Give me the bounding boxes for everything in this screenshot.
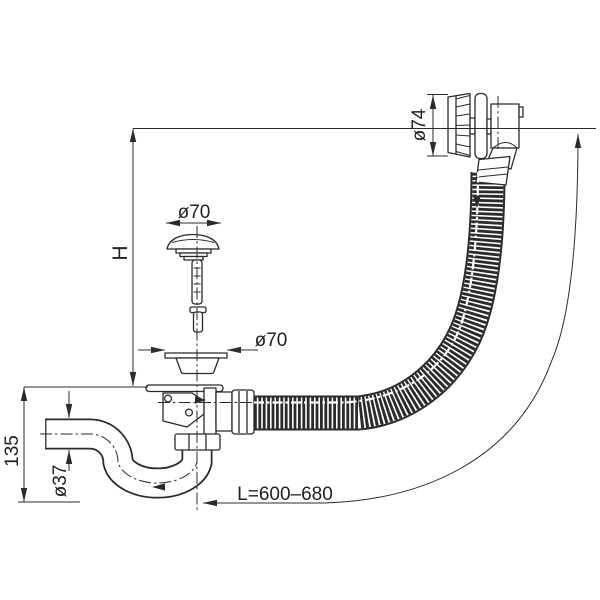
- dim-label-135: 135: [2, 435, 23, 467]
- arrowhead-right: [151, 347, 165, 353]
- dim-label-dia37: ø37: [50, 465, 71, 498]
- compression-nut: [232, 390, 254, 434]
- outlet-taper: [216, 392, 232, 431]
- arrowhead-left: [203, 500, 217, 506]
- hose-sleeve: [476, 157, 510, 186]
- knob-hub: [470, 118, 475, 134]
- arrowhead-up: [21, 387, 27, 401]
- overflow-body: [491, 104, 519, 148]
- overflow-body-tab: [519, 107, 523, 117]
- dim-hose-length: [203, 134, 581, 506]
- overflow-fitting: [448, 94, 523, 186]
- siphon-technical-drawing: H 135 ø37 ø70 ø70 ø74: [0, 0, 600, 600]
- overflow-flange-disc: [475, 94, 487, 159]
- dim-overflow-dia-74: [427, 95, 448, 157]
- linkage-pin: [190, 307, 206, 332]
- arrowhead-down: [130, 372, 136, 386]
- drain-plug: [167, 235, 219, 305]
- dim-label-length: L=600–680: [237, 484, 333, 505]
- arrowhead-down: [430, 142, 436, 156]
- strainer-basket: [165, 353, 227, 374]
- dim-label-H: H: [109, 245, 132, 260]
- arrowhead-down: [21, 488, 27, 502]
- dim-label-dia70-plug: ø70: [178, 202, 211, 223]
- arrowhead-up: [66, 450, 72, 464]
- arrowhead-up: [430, 95, 436, 109]
- dim-strainer-dia-70: [138, 347, 258, 353]
- dim-label-dia74: ø74: [409, 108, 430, 141]
- technical-drawing-canvas: H 135 ø37 ø70 ø70 ø74: [0, 0, 600, 600]
- trap-screw-hole: [165, 395, 172, 402]
- corrugated-hose: [254, 172, 488, 413]
- outlet-taper: [204, 388, 216, 435]
- arrowhead-up: [575, 134, 581, 148]
- trap-screw-hole: [186, 409, 193, 416]
- trap-body: [146, 385, 254, 450]
- arrowhead-up: [130, 129, 136, 143]
- dim-label-dia70-strainer: ø70: [255, 330, 288, 351]
- arrowhead-down: [66, 404, 72, 418]
- arrowhead-left: [227, 347, 241, 353]
